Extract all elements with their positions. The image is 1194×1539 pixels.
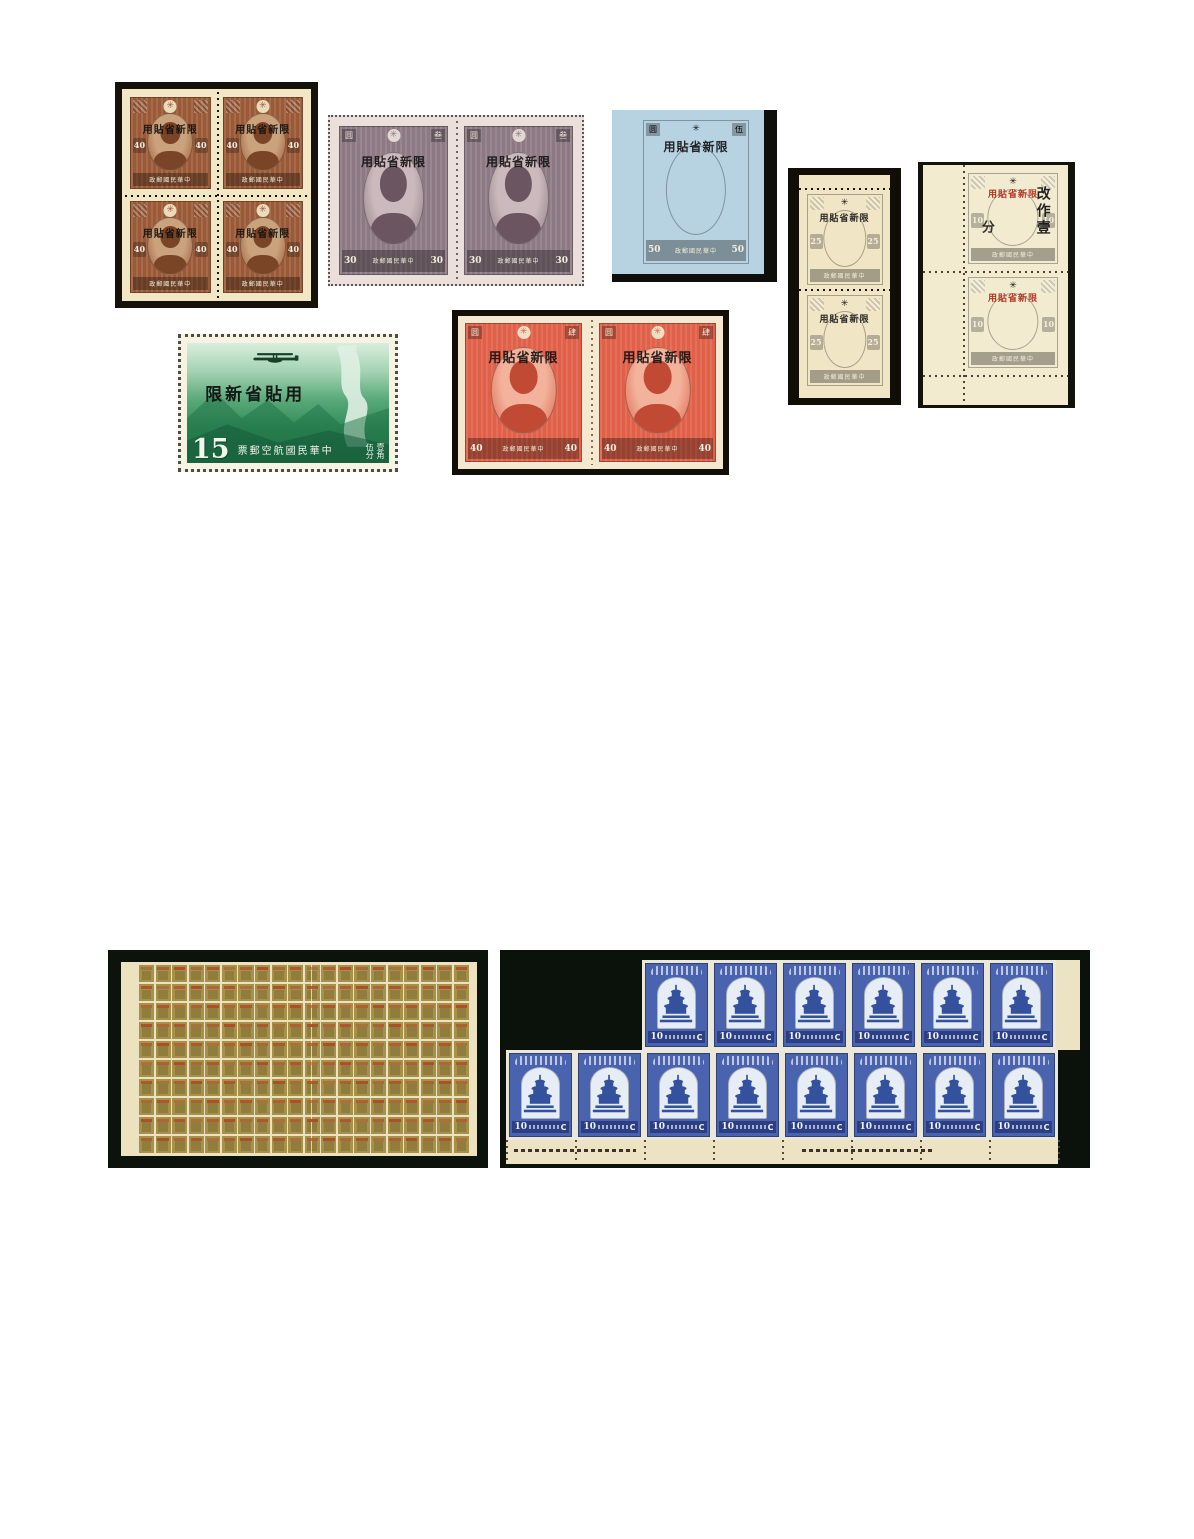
denomination: 40 xyxy=(195,138,208,153)
sheet-stamp xyxy=(139,1079,154,1096)
stamp-paper: ✳1010政郵國民華中用貼省新限改作壹分✳1010政郵國民華中用貼省新限 xyxy=(923,165,1068,405)
surcharge-band xyxy=(141,1119,152,1122)
stamp-core xyxy=(307,1046,317,1056)
stamp-core xyxy=(291,1084,301,1094)
sheet-stamp xyxy=(238,1060,253,1077)
sheet-stamp xyxy=(437,1079,452,1096)
sun-emblem-icon: ✳ xyxy=(690,123,703,136)
sheet-stamp xyxy=(222,1136,237,1153)
stamp-core xyxy=(175,1103,185,1113)
sun-emblem-icon: ✳ xyxy=(838,298,851,311)
surcharge-band xyxy=(157,1138,168,1141)
denomination: 10 xyxy=(971,317,984,332)
temple-of-heaven-stamp: 10C xyxy=(987,960,1056,1050)
sheet-stamp xyxy=(139,1098,154,1115)
denomination: 10 xyxy=(650,1032,663,1042)
denomination: 40 xyxy=(133,138,146,153)
stamp-core xyxy=(440,1103,450,1113)
stamp-core xyxy=(407,1103,417,1113)
stamp-core xyxy=(307,1122,317,1132)
stamp-frame: ✳圆肆40政郵國民華中40用貼省新限 xyxy=(599,323,716,462)
currency-letter: C xyxy=(975,1123,981,1132)
surcharge-band xyxy=(340,1043,351,1046)
surcharge-band xyxy=(174,1043,185,1046)
corner-ornament xyxy=(226,204,240,217)
surcharge-band xyxy=(356,1043,367,1046)
stamp-core xyxy=(374,1027,384,1037)
stamp-core xyxy=(307,1103,317,1113)
surcharge-band xyxy=(240,1119,251,1122)
band-inscription xyxy=(941,1035,971,1039)
surcharge-band xyxy=(157,1043,168,1046)
surcharge-band xyxy=(224,1119,235,1122)
brown-25-stamp: ✳2525政郵國民華中用貼省新限 xyxy=(804,191,886,288)
stamp-core xyxy=(241,1141,251,1151)
surcharge-band xyxy=(224,1005,235,1008)
stamp-core xyxy=(291,1065,301,1075)
surcharge-band xyxy=(373,1100,384,1103)
sheet-stamp xyxy=(404,1079,419,1096)
stamp-core xyxy=(440,1008,450,1018)
stamp-core xyxy=(341,1141,351,1151)
surcharge-band xyxy=(373,967,384,970)
sheet-stamp xyxy=(388,1079,403,1096)
sheet-stamp xyxy=(388,1117,403,1134)
stamp-core xyxy=(175,1008,185,1018)
denomination: 10 xyxy=(514,1122,527,1132)
stamp-core xyxy=(258,1122,268,1132)
bottom-band: 15票郵空航國民華中伍分壹角 xyxy=(192,433,384,461)
surcharge-band xyxy=(224,1024,235,1027)
surcharge-band xyxy=(257,1062,268,1065)
sheet-stamp xyxy=(454,965,469,982)
denomination: 10 xyxy=(788,1032,801,1042)
surcharge-band xyxy=(207,1138,218,1141)
sheet-stamp xyxy=(371,1136,386,1153)
temple-window xyxy=(866,1067,906,1119)
sheet-stamp xyxy=(238,965,253,982)
sheet-stamp xyxy=(272,984,287,1001)
stamp-core xyxy=(357,1065,367,1075)
temple-window xyxy=(590,1067,630,1119)
stamp-core xyxy=(225,1027,235,1037)
surcharge-band xyxy=(157,1100,168,1103)
stamp-core xyxy=(225,990,235,1000)
surcharge-band xyxy=(174,1081,185,1084)
sheet-stamp xyxy=(338,1136,353,1153)
bottom-band: 政郵國民華中 xyxy=(971,248,1055,261)
brown-40-stamp: ✳4040政郵國民華中用貼省新限 xyxy=(220,94,307,192)
surcharge-band xyxy=(340,986,351,989)
stamp-core xyxy=(324,990,334,1000)
perforation-line xyxy=(920,1140,922,1164)
surcharge-band xyxy=(373,1081,384,1084)
sheet-stamp xyxy=(172,984,187,1001)
perforation-line xyxy=(799,188,890,190)
sheet-stamp xyxy=(454,1022,469,1039)
sheet-stamp xyxy=(288,1136,303,1153)
sheet-stamp xyxy=(338,1060,353,1077)
top-arc-inscription xyxy=(858,966,909,975)
green-10-stamp: ✳1010政郵國民華中用貼省新限改作壹分 xyxy=(965,170,1061,267)
stamp-core xyxy=(258,1027,268,1037)
sheet-stamp xyxy=(255,965,270,982)
sheet-stamp xyxy=(288,1079,303,1096)
corner-ornament xyxy=(133,204,147,217)
stamp-core xyxy=(341,990,351,1000)
surcharge-band xyxy=(356,1024,367,1027)
surcharge-band xyxy=(273,986,284,989)
sheet-stamp xyxy=(156,1041,171,1058)
denomination: 40 xyxy=(133,242,146,257)
sheet-stamp xyxy=(255,1136,270,1153)
stamp-frame: 10C xyxy=(716,1053,779,1137)
band-inscription xyxy=(667,1125,697,1129)
stamp-core xyxy=(324,1141,334,1151)
lot-brown-block-of-four: ✳4040政郵國民華中用貼省新限✳4040政郵國民華中用貼省新限✳4040政郵國… xyxy=(115,82,318,308)
sheet-stamp xyxy=(222,1022,237,1039)
stamp-core xyxy=(225,1065,235,1075)
surcharge-band xyxy=(406,986,417,989)
temple-of-heaven-stamp: 10C xyxy=(642,960,711,1050)
brown-40-stamp: ✳4040政郵國民華中用貼省新限 xyxy=(220,198,307,296)
stamp-core xyxy=(423,1046,433,1056)
stamp-core xyxy=(457,1008,467,1018)
sheet-stamp xyxy=(156,1022,171,1039)
stamp-core xyxy=(390,1103,400,1113)
stamp-core xyxy=(374,1046,384,1056)
surcharge-band xyxy=(207,1005,218,1008)
currency-letter: C xyxy=(837,1123,843,1132)
sheet-stamp xyxy=(388,1136,403,1153)
sheet-stamp xyxy=(321,1117,336,1134)
top-arc-inscription xyxy=(927,966,978,975)
stamp-core xyxy=(324,1027,334,1037)
denomination: 40 xyxy=(564,444,577,454)
sheet-stamp xyxy=(338,1098,353,1115)
country-inscription: 政郵國民華中 xyxy=(482,256,556,265)
surcharge-band xyxy=(456,967,467,970)
sheet-stamp xyxy=(437,1060,452,1077)
surcharge-band xyxy=(240,1005,251,1008)
corner-ornament xyxy=(194,204,208,217)
bottom-selvage xyxy=(506,1140,1058,1164)
surcharge-band xyxy=(307,1062,318,1065)
perforation-line xyxy=(713,1140,715,1164)
sheet-stamp xyxy=(321,1041,336,1058)
sheet-stamp xyxy=(189,1060,204,1077)
stamp-core xyxy=(175,1027,185,1037)
stamp-core xyxy=(258,990,268,1000)
sheet-stamp xyxy=(388,1003,403,1020)
denomination: 25 xyxy=(810,234,823,249)
value-characters: 壹角 xyxy=(375,443,384,459)
denomination: 10 xyxy=(857,1032,870,1042)
sheet-stamp xyxy=(238,1041,253,1058)
surcharge-band xyxy=(307,1005,318,1008)
sheet-stamp xyxy=(272,1117,287,1134)
top-arc-inscription xyxy=(720,966,771,975)
surcharge-band xyxy=(307,986,318,989)
stamp-core xyxy=(374,1141,384,1151)
surcharge-band xyxy=(157,1119,168,1122)
stamp-core xyxy=(208,990,218,1000)
sheet-stamp xyxy=(189,1041,204,1058)
surcharge-band xyxy=(389,967,400,970)
surcharge-band xyxy=(207,986,218,989)
denomination: 40 xyxy=(287,242,300,257)
surcharge-band xyxy=(323,1081,334,1084)
country-inscription: 政郵國民華中 xyxy=(228,175,299,184)
bottom-band: 10C xyxy=(926,1121,982,1133)
surcharge-band xyxy=(141,1100,152,1103)
stamp-core xyxy=(175,1046,185,1056)
stamp-core xyxy=(407,1122,417,1132)
surcharge-band xyxy=(389,986,400,989)
denomination: 40 xyxy=(226,138,239,153)
sheet-stamp xyxy=(172,1098,187,1115)
stamp-core xyxy=(390,1141,400,1151)
overprint: 用貼省新限 xyxy=(600,347,715,366)
stamp-core xyxy=(142,1141,152,1151)
stamp-core xyxy=(175,1065,185,1075)
stamp-core xyxy=(423,1141,433,1151)
surcharge-band xyxy=(307,1024,318,1027)
sheet-stamp xyxy=(222,1117,237,1134)
stamp-core xyxy=(457,971,467,981)
stamp-core xyxy=(357,990,367,1000)
sheet-stamp xyxy=(139,1060,154,1077)
band-inscription xyxy=(874,1125,904,1129)
band-inscription xyxy=(736,1125,766,1129)
surcharge-band xyxy=(257,1043,268,1046)
sheet-stamp xyxy=(272,1060,287,1077)
stamp-core xyxy=(175,971,185,981)
stamp-frame: ✳4040政郵國民華中用貼省新限 xyxy=(223,201,304,293)
country-inscription: 政郵國民華中 xyxy=(812,372,878,381)
stamp-core xyxy=(341,1046,351,1056)
stamp-core xyxy=(191,1065,201,1075)
sheet-stamp xyxy=(437,1117,452,1134)
airmail-vignette: 限新省貼用15票郵空航國民華中伍分壹角 xyxy=(187,343,389,463)
surcharge-band xyxy=(439,986,450,989)
sheet-stamp xyxy=(338,1003,353,1020)
stamp-core xyxy=(274,1008,284,1018)
sheet-stamp xyxy=(156,1079,171,1096)
overprint: 用貼省新限 xyxy=(131,121,210,136)
stamp-core xyxy=(142,1046,152,1056)
temple-of-heaven-stamp: 10C xyxy=(851,1050,920,1140)
stamp-core xyxy=(374,1122,384,1132)
sheet-stamp xyxy=(421,1041,436,1058)
right-margin xyxy=(1056,960,1080,1050)
blue-50-stamp: ✳圆伍50政郵國民華中50用貼省新限 xyxy=(640,117,752,267)
sheet-stamp xyxy=(388,1041,403,1058)
perforation-line xyxy=(799,289,890,291)
lot-red-pair: ✳圆肆40政郵國民華中40用貼省新限✳圆肆40政郵國民華中40用貼省新限 xyxy=(452,310,729,475)
surcharge: 分 xyxy=(977,220,996,233)
corner-ornament xyxy=(286,204,300,217)
top-arc-inscription xyxy=(791,1056,842,1065)
surcharge-band xyxy=(257,1024,268,1027)
bottom-band: 10C xyxy=(650,1121,706,1133)
sheet-stamp xyxy=(421,1060,436,1077)
surcharge-band xyxy=(340,1024,351,1027)
sheet-stamp xyxy=(238,1117,253,1134)
corner-ornament xyxy=(286,100,300,113)
stamp-core xyxy=(407,990,417,1000)
sheet-stamp xyxy=(272,1003,287,1020)
sheet-stamp xyxy=(205,1098,220,1115)
surcharge-band xyxy=(389,1043,400,1046)
stamp-core xyxy=(324,1103,334,1113)
stamp-core xyxy=(208,1046,218,1056)
country-inscription: 政郵國民華中 xyxy=(973,250,1053,259)
stamp-core xyxy=(191,990,201,1000)
sheet-stamp xyxy=(371,1060,386,1077)
sun-emblem-icon: ✳ xyxy=(387,129,400,142)
temple-window xyxy=(795,977,835,1029)
denomination: 25 xyxy=(810,335,823,350)
surcharge-band xyxy=(456,1081,467,1084)
stamp-core xyxy=(274,1065,284,1075)
surcharge-band xyxy=(174,1062,185,1065)
top-arc-inscription xyxy=(722,1056,773,1065)
perforation-line xyxy=(1058,1140,1060,1164)
sheet-stamp xyxy=(321,1022,336,1039)
temple-window xyxy=(797,1067,837,1119)
band-inscription xyxy=(1012,1125,1042,1129)
stamp-core xyxy=(208,1008,218,1018)
sheet-stamp xyxy=(255,1117,270,1134)
sheet-stamp xyxy=(272,1098,287,1115)
stamp-core xyxy=(341,1122,351,1132)
denomination: 10 xyxy=(926,1032,939,1042)
temple-window xyxy=(659,1067,699,1119)
currency-letter: C xyxy=(906,1123,912,1132)
bottom-band: 政郵國民華中 xyxy=(226,173,301,187)
sun-emblem-icon: ✳ xyxy=(164,100,177,113)
surcharge-band xyxy=(373,986,384,989)
perforation-line xyxy=(923,271,1068,273)
surcharge-band xyxy=(373,1062,384,1065)
surcharge-band xyxy=(207,1100,218,1103)
band-inscription xyxy=(1010,1035,1040,1039)
sheet-stamp xyxy=(421,1022,436,1039)
stamp-core xyxy=(158,971,168,981)
stamp-core xyxy=(357,971,367,981)
red-40-stamp: ✳圆肆40政郵國民華中40用貼省新限 xyxy=(596,320,719,465)
surcharge-band xyxy=(456,1024,467,1027)
sheet-stamp xyxy=(388,1098,403,1115)
stamp-core xyxy=(258,971,268,981)
sheet-stamp xyxy=(421,1117,436,1134)
stamp-core xyxy=(307,1065,317,1075)
sheet-stamp xyxy=(305,1117,320,1134)
surcharge-band xyxy=(157,1081,168,1084)
surcharge-band xyxy=(406,1119,417,1122)
currency-letter: C xyxy=(768,1123,774,1132)
surcharge-band xyxy=(439,1043,450,1046)
stamp-core xyxy=(423,1065,433,1075)
surcharge-band xyxy=(240,967,251,970)
currency-letter: C xyxy=(699,1123,705,1132)
sheet-stamp xyxy=(321,1098,336,1115)
stamp-frame: 10C xyxy=(921,963,984,1047)
stamp-core xyxy=(357,1027,367,1037)
surcharge-band xyxy=(224,1138,235,1141)
stamp-core xyxy=(357,1141,367,1151)
currency-letter: C xyxy=(697,1033,703,1042)
stamp-core xyxy=(208,1065,218,1075)
surcharge-band xyxy=(307,1119,318,1122)
surcharge-band xyxy=(456,986,467,989)
surcharge-band xyxy=(240,1062,251,1065)
sheet-stamp xyxy=(371,1079,386,1096)
band-inscription xyxy=(598,1125,628,1129)
temple-window xyxy=(726,977,766,1029)
sheet-stamp xyxy=(321,1136,336,1153)
surcharge-band xyxy=(389,1081,400,1084)
surcharge-band xyxy=(257,1005,268,1008)
stamp-core xyxy=(274,990,284,1000)
stamp-core xyxy=(341,1084,351,1094)
sheet-stamp xyxy=(172,1022,187,1039)
stamp-core xyxy=(258,1046,268,1056)
portrait-oval xyxy=(666,145,726,235)
sheet-stamp xyxy=(421,984,436,1001)
stamp-core xyxy=(341,1027,351,1037)
sheet-stamp xyxy=(139,1041,154,1058)
sheet-stamp xyxy=(354,1022,369,1039)
bottom-band: 政郵國民華中 xyxy=(133,173,208,187)
surcharge-band xyxy=(423,1005,434,1008)
stamp-core xyxy=(407,1027,417,1037)
denomination: 40 xyxy=(470,444,483,454)
sheet-stamp xyxy=(172,1060,187,1077)
surcharge-band xyxy=(356,1062,367,1065)
sheet-stamp xyxy=(189,1079,204,1096)
sheet-stamp xyxy=(205,1041,220,1058)
surcharge-band xyxy=(373,1005,384,1008)
denomination: 10 xyxy=(859,1122,872,1132)
denomination: 40 xyxy=(604,444,617,454)
sheet-stamp xyxy=(305,1098,320,1115)
stamp-core xyxy=(225,1046,235,1056)
sheet-stamp xyxy=(454,1098,469,1115)
temple-of-heaven-stamp: 10C xyxy=(849,960,918,1050)
stamp-pane: ✳圆肆40政郵國民華中40用貼省新限✳圆肆40政郵國民華中40用貼省新限 xyxy=(458,316,723,469)
perforation-line xyxy=(456,121,458,280)
stamp-core xyxy=(274,1103,284,1113)
stamp-pane: ✳2525政郵國民華中用貼省新限✳2525政郵國民華中用貼省新限 xyxy=(799,175,890,398)
stamp-core xyxy=(291,1027,301,1037)
surcharge-band xyxy=(406,1081,417,1084)
stamp-core xyxy=(374,971,384,981)
sheet-stamp xyxy=(321,1003,336,1020)
purple-30-stamp: ✳圆叁30政郵國民華中30用貼省新限 xyxy=(336,123,451,278)
sheet-stamp xyxy=(139,965,154,982)
top-arc-inscription xyxy=(789,966,840,975)
top-arc-inscription xyxy=(584,1056,635,1065)
stamp-core xyxy=(374,1103,384,1113)
sheet-stamp xyxy=(354,965,369,982)
surcharge-band xyxy=(257,967,268,970)
top-arc-inscription xyxy=(998,1056,1049,1065)
stamp-core xyxy=(158,1008,168,1018)
band-inscription xyxy=(734,1035,764,1039)
sheet-stamp xyxy=(404,965,419,982)
